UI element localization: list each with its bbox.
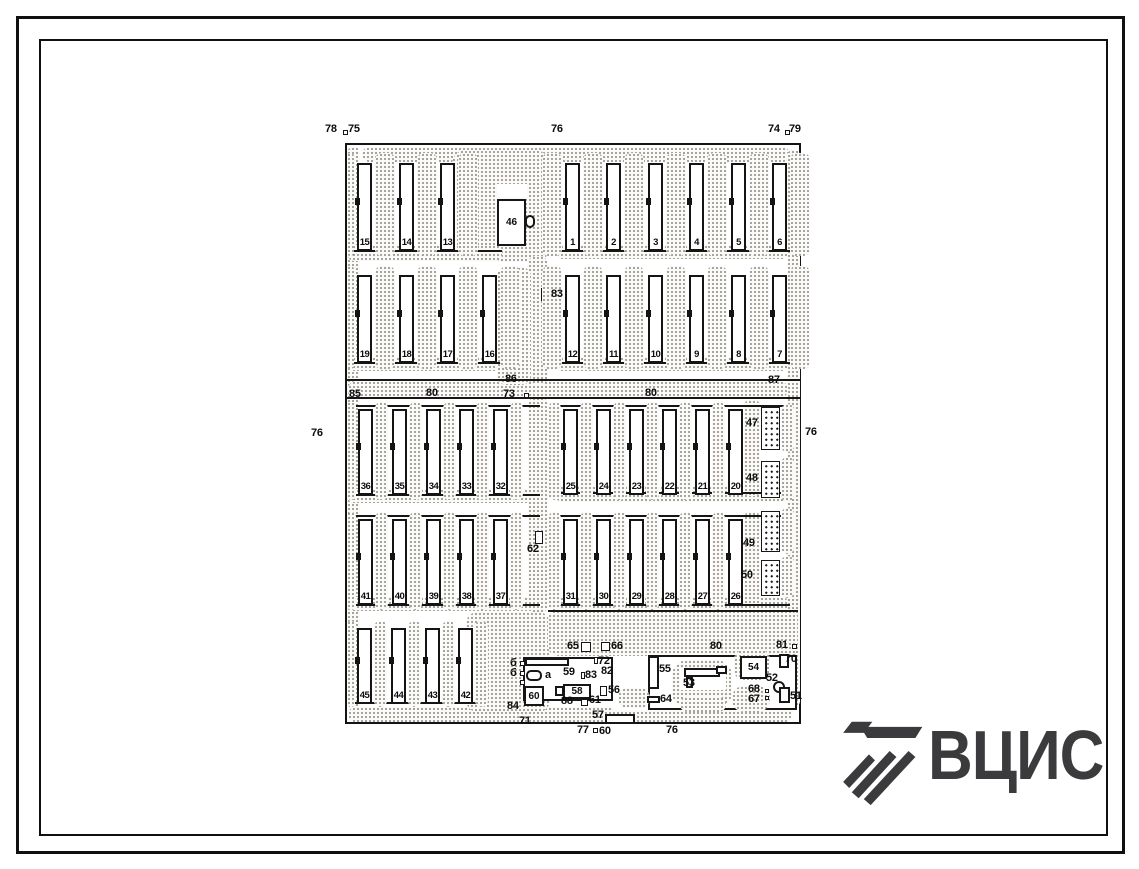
label-80: 80 bbox=[645, 388, 657, 399]
greenery-strip bbox=[646, 512, 659, 610]
label-57: 57 bbox=[592, 710, 604, 721]
greenery-strip bbox=[476, 512, 489, 610]
label-78: 78 bbox=[325, 124, 337, 135]
label-73: 73 bbox=[503, 389, 515, 400]
greenery-strip bbox=[548, 402, 561, 500]
label-79: 79 bbox=[789, 124, 801, 135]
label-47: 47 bbox=[746, 418, 758, 429]
greenery-strip bbox=[374, 621, 387, 707]
building-43: 43 bbox=[425, 628, 440, 704]
building-46: 46 bbox=[497, 199, 526, 246]
line bbox=[345, 379, 801, 381]
greenery-strip bbox=[583, 266, 603, 369]
greenery-strip bbox=[666, 266, 686, 369]
door-tick bbox=[356, 443, 361, 450]
building-34: 34 bbox=[426, 409, 441, 495]
door-tick bbox=[693, 553, 698, 560]
building-number: 13 bbox=[438, 237, 457, 248]
label-66: 66 bbox=[611, 641, 623, 652]
building-number: 3 bbox=[646, 237, 665, 248]
building-number: 41 bbox=[356, 591, 375, 602]
building-19: 19 bbox=[357, 275, 372, 363]
door-tick bbox=[457, 443, 462, 450]
label-80: 80 bbox=[426, 388, 438, 399]
line bbox=[548, 610, 798, 612]
door-tick bbox=[770, 198, 775, 205]
pen-49 bbox=[761, 511, 780, 552]
greenery-strip bbox=[443, 512, 456, 610]
road-mid bbox=[348, 381, 788, 398]
building-51 bbox=[779, 687, 790, 703]
greenery-strip bbox=[666, 153, 686, 256]
building-number: 11 bbox=[604, 349, 623, 360]
sq bbox=[524, 393, 529, 398]
greenery-strip bbox=[749, 266, 769, 369]
door-tick bbox=[646, 310, 651, 317]
label-82: 82 bbox=[601, 666, 613, 677]
greenery-strip bbox=[712, 402, 725, 500]
building-7: 7 bbox=[772, 275, 787, 363]
door-tick bbox=[561, 553, 566, 560]
label-50: 50 bbox=[741, 570, 753, 581]
box bbox=[525, 658, 569, 666]
drawing-sheet: 4654586015141312345619181716121110987363… bbox=[0, 0, 1139, 869]
building-number: 18 bbox=[397, 349, 416, 360]
greenery-strip bbox=[408, 621, 421, 707]
building-number: 14 bbox=[397, 237, 416, 248]
building-42: 42 bbox=[458, 628, 473, 704]
greenery-strip bbox=[458, 266, 478, 369]
line bbox=[345, 397, 801, 399]
door-tick bbox=[627, 443, 632, 450]
building-10: 10 bbox=[648, 275, 663, 363]
building-30: 30 bbox=[596, 519, 611, 605]
building-number: 33 bbox=[457, 481, 476, 492]
sq bbox=[581, 699, 588, 706]
box bbox=[525, 215, 535, 228]
building-27: 27 bbox=[695, 519, 710, 605]
building-15: 15 bbox=[357, 163, 372, 251]
building-22: 22 bbox=[662, 409, 677, 495]
door-tick bbox=[770, 310, 775, 317]
greenery-strip bbox=[613, 512, 626, 610]
sq bbox=[765, 689, 769, 693]
greenery-strip bbox=[510, 402, 523, 500]
label-87: 87 bbox=[768, 375, 780, 386]
door-tick bbox=[563, 198, 568, 205]
greenery-strip bbox=[375, 402, 388, 500]
building-number: 46 bbox=[499, 201, 524, 244]
greenery-strip bbox=[679, 512, 692, 610]
building-23: 23 bbox=[629, 409, 644, 495]
building-number: 20 bbox=[726, 481, 745, 492]
label-81: 81 bbox=[776, 640, 788, 651]
building-number: 32 bbox=[491, 481, 510, 492]
building-number: 22 bbox=[660, 481, 679, 492]
door-tick bbox=[491, 443, 496, 450]
building-number: 54 bbox=[742, 658, 765, 677]
door-tick bbox=[390, 553, 395, 560]
door-tick bbox=[397, 198, 402, 205]
greenery-strip bbox=[613, 402, 626, 500]
label-86: 86 bbox=[505, 374, 517, 385]
pen-47 bbox=[761, 407, 780, 450]
building-number: 36 bbox=[356, 481, 375, 492]
sq bbox=[765, 696, 769, 700]
label-б: б bbox=[510, 668, 517, 679]
door-tick bbox=[480, 310, 485, 317]
door-tick bbox=[660, 443, 665, 450]
building-26: 26 bbox=[728, 519, 743, 605]
label-53: 53 bbox=[683, 678, 695, 689]
label-51: 51 bbox=[790, 691, 802, 702]
building-60: 60 bbox=[524, 686, 544, 706]
greenery-strip bbox=[442, 621, 455, 707]
greenery-strip bbox=[476, 402, 489, 500]
building-37: 37 bbox=[493, 519, 508, 605]
building-number: 45 bbox=[355, 690, 374, 701]
building-18: 18 bbox=[399, 275, 414, 363]
door-tick bbox=[424, 443, 429, 450]
building-2: 2 bbox=[606, 163, 621, 251]
greenery-strip bbox=[409, 402, 422, 500]
door-tick bbox=[355, 657, 360, 664]
label-55: 55 bbox=[659, 664, 671, 675]
greenery-strip bbox=[679, 402, 692, 500]
door-tick bbox=[355, 198, 360, 205]
building-54: 54 bbox=[740, 656, 767, 679]
label-49: 49 bbox=[743, 538, 755, 549]
door-tick bbox=[729, 310, 734, 317]
building-number: 19 bbox=[355, 349, 374, 360]
label-76: 76 bbox=[311, 428, 323, 439]
building-33: 33 bbox=[459, 409, 474, 495]
greenery-strip bbox=[375, 266, 395, 369]
door-tick bbox=[660, 553, 665, 560]
label-65: 65 bbox=[567, 641, 579, 652]
building-number: 27 bbox=[693, 591, 712, 602]
building-number: 35 bbox=[390, 481, 409, 492]
pen-50 bbox=[761, 560, 780, 596]
building-12: 12 bbox=[565, 275, 580, 363]
building-29: 29 bbox=[629, 519, 644, 605]
building-number: 31 bbox=[561, 591, 580, 602]
greenery-strip bbox=[417, 266, 437, 369]
building-39: 39 bbox=[426, 519, 441, 605]
building-20: 20 bbox=[728, 409, 743, 495]
building-number: 12 bbox=[563, 349, 582, 360]
building-number: 2 bbox=[604, 237, 623, 248]
building-28: 28 bbox=[662, 519, 677, 605]
building-number: 1 bbox=[563, 237, 582, 248]
stip bbox=[781, 404, 794, 452]
building-number: 15 bbox=[355, 237, 374, 248]
door-tick bbox=[424, 553, 429, 560]
door-tick bbox=[687, 310, 692, 317]
greenery-strip bbox=[624, 266, 644, 369]
building-number: 28 bbox=[660, 591, 679, 602]
door-tick bbox=[491, 553, 496, 560]
label-62: 62 bbox=[527, 544, 539, 555]
wrect bbox=[497, 184, 527, 197]
building-57 bbox=[605, 714, 635, 724]
building-16: 16 bbox=[482, 275, 497, 363]
building-number: 9 bbox=[687, 349, 706, 360]
pen-48 bbox=[761, 461, 780, 498]
label-74: 74 bbox=[768, 124, 780, 135]
building-number: 17 bbox=[438, 349, 457, 360]
greenery-strip bbox=[542, 153, 562, 256]
greenery-strip bbox=[409, 512, 422, 610]
stip bbox=[680, 697, 726, 712]
label-67: 67 bbox=[748, 694, 760, 705]
building-number: 24 bbox=[594, 481, 613, 492]
building-3: 3 bbox=[648, 163, 663, 251]
label-70: 70 bbox=[785, 654, 797, 665]
door-tick bbox=[457, 553, 462, 560]
item-a bbox=[526, 670, 542, 681]
building-number: 7 bbox=[770, 349, 789, 360]
label-48: 48 bbox=[746, 473, 758, 484]
greenery-strip bbox=[375, 512, 388, 610]
building-8: 8 bbox=[731, 275, 746, 363]
building-45: 45 bbox=[357, 628, 372, 704]
label-76: 76 bbox=[666, 725, 678, 736]
stip bbox=[781, 457, 794, 501]
sq bbox=[520, 680, 525, 685]
building-36: 36 bbox=[358, 409, 373, 495]
label-83: 83 bbox=[551, 289, 563, 300]
vcis-emblem-icon bbox=[838, 720, 924, 806]
label-52: 52 bbox=[766, 673, 778, 684]
label-80: 80 bbox=[710, 641, 722, 652]
vcis-logo-text: ВЦИС bbox=[928, 722, 1103, 791]
building-number: 29 bbox=[627, 591, 646, 602]
door-tick bbox=[438, 198, 443, 205]
building-32: 32 bbox=[493, 409, 508, 495]
building-number: 5 bbox=[729, 237, 748, 248]
door-tick bbox=[561, 443, 566, 450]
building-number: 21 bbox=[693, 481, 712, 492]
door-tick bbox=[726, 443, 731, 450]
greenery-strip bbox=[712, 512, 725, 610]
greenery-strip bbox=[347, 402, 356, 500]
building-21: 21 bbox=[695, 409, 710, 495]
building-55 bbox=[648, 656, 659, 689]
building-number: 34 bbox=[424, 481, 443, 492]
door-tick bbox=[355, 310, 360, 317]
building-number: 25 bbox=[561, 481, 580, 492]
greenery-strip bbox=[347, 153, 354, 256]
building-11: 11 bbox=[606, 275, 621, 363]
greenery-strip bbox=[443, 402, 456, 500]
label-76: 76 bbox=[805, 427, 817, 438]
door-tick bbox=[390, 443, 395, 450]
door-tick bbox=[594, 553, 599, 560]
label-83: 83 bbox=[585, 670, 597, 681]
building-17: 17 bbox=[440, 275, 455, 363]
door-tick bbox=[389, 657, 394, 664]
building-number: 39 bbox=[424, 591, 443, 602]
building-9: 9 bbox=[689, 275, 704, 363]
greenery-strip bbox=[707, 266, 727, 369]
building-14: 14 bbox=[399, 163, 414, 251]
door-tick bbox=[456, 657, 461, 664]
building-number: 10 bbox=[646, 349, 665, 360]
door-tick bbox=[729, 198, 734, 205]
door-tick bbox=[563, 310, 568, 317]
label-77: 77 bbox=[577, 725, 589, 736]
label-61: 61 bbox=[589, 695, 601, 706]
door-tick bbox=[693, 443, 698, 450]
building-13: 13 bbox=[440, 163, 455, 251]
building-25: 25 bbox=[563, 409, 578, 495]
building-35: 35 bbox=[392, 409, 407, 495]
building-number: 16 bbox=[480, 349, 499, 360]
label-88: 88 bbox=[561, 696, 573, 707]
marker-66 bbox=[601, 642, 610, 651]
marker-56 bbox=[600, 686, 607, 696]
building-number: 6 bbox=[770, 237, 789, 248]
greenery-strip bbox=[347, 621, 355, 707]
label-76: 76 bbox=[551, 124, 563, 135]
door-tick bbox=[397, 310, 402, 317]
label-60: 60 bbox=[599, 726, 611, 737]
greenery-strip bbox=[417, 153, 437, 256]
door-tick bbox=[356, 553, 361, 560]
greenery-strip bbox=[583, 153, 603, 256]
building-number: 42 bbox=[456, 690, 475, 701]
building-number: 23 bbox=[627, 481, 646, 492]
greenery-strip bbox=[510, 512, 523, 610]
building-41: 41 bbox=[358, 519, 373, 605]
sq bbox=[520, 671, 525, 676]
door-tick bbox=[627, 553, 632, 560]
stip bbox=[781, 508, 794, 554]
sq bbox=[792, 644, 797, 649]
label-59: 59 bbox=[563, 667, 575, 678]
stip bbox=[618, 688, 650, 708]
building-24: 24 bbox=[596, 409, 611, 495]
label-85: 85 bbox=[349, 389, 361, 400]
building-53 bbox=[684, 668, 720, 677]
greenery-strip bbox=[475, 621, 488, 707]
door-tick bbox=[594, 443, 599, 450]
door-tick bbox=[604, 198, 609, 205]
building-4: 4 bbox=[689, 163, 704, 251]
door-tick bbox=[726, 553, 731, 560]
greenery-strip bbox=[580, 402, 593, 500]
door-tick bbox=[423, 657, 428, 664]
stip bbox=[781, 556, 794, 598]
door-tick bbox=[687, 198, 692, 205]
greenery-strip bbox=[347, 266, 354, 369]
building-number: 8 bbox=[729, 349, 748, 360]
greenery-strip bbox=[749, 153, 769, 256]
vcis-logo: ВЦИС bbox=[838, 720, 1103, 806]
marker-65 bbox=[581, 642, 591, 652]
building-38: 38 bbox=[459, 519, 474, 605]
building-64 bbox=[647, 696, 660, 703]
greenery-strip bbox=[790, 153, 810, 256]
building-31: 31 bbox=[563, 519, 578, 605]
building-number: 40 bbox=[390, 591, 409, 602]
greenery-strip bbox=[542, 266, 562, 369]
road-center-lower bbox=[528, 397, 548, 613]
building-number: 4 bbox=[687, 237, 706, 248]
greenery-strip bbox=[624, 153, 644, 256]
building-44: 44 bbox=[391, 628, 406, 704]
building-number: 60 bbox=[526, 688, 542, 704]
building-number: 43 bbox=[423, 690, 442, 701]
greenery-strip bbox=[707, 153, 727, 256]
label-75: 75 bbox=[348, 124, 360, 135]
building-number: 26 bbox=[726, 591, 745, 602]
greenery-strip bbox=[347, 512, 356, 610]
label-64: 64 bbox=[660, 694, 672, 705]
door-tick bbox=[438, 310, 443, 317]
sq bbox=[593, 728, 598, 733]
building-number: 30 bbox=[594, 591, 613, 602]
building-number: 37 bbox=[491, 591, 510, 602]
greenery-strip bbox=[548, 512, 561, 610]
greenery-strip bbox=[646, 402, 659, 500]
building-number: 38 bbox=[457, 591, 476, 602]
greenery-strip bbox=[458, 153, 478, 256]
greenery-strip bbox=[500, 266, 520, 369]
sq bbox=[520, 661, 525, 666]
greenery-strip bbox=[580, 512, 593, 610]
greenery-strip bbox=[790, 266, 810, 369]
label-71: 71 bbox=[519, 716, 531, 727]
building-40: 40 bbox=[392, 519, 407, 605]
building-number: 44 bbox=[389, 690, 408, 701]
greenery-strip bbox=[375, 153, 395, 256]
door-tick bbox=[604, 310, 609, 317]
label-84: 84 bbox=[507, 701, 519, 712]
label-56: 56 bbox=[608, 685, 620, 696]
label-а: а bbox=[545, 670, 551, 681]
stip bbox=[744, 512, 760, 606]
building-6: 6 bbox=[772, 163, 787, 251]
door-tick bbox=[646, 198, 651, 205]
box bbox=[716, 666, 727, 674]
building-5: 5 bbox=[731, 163, 746, 251]
building-1: 1 bbox=[565, 163, 580, 251]
